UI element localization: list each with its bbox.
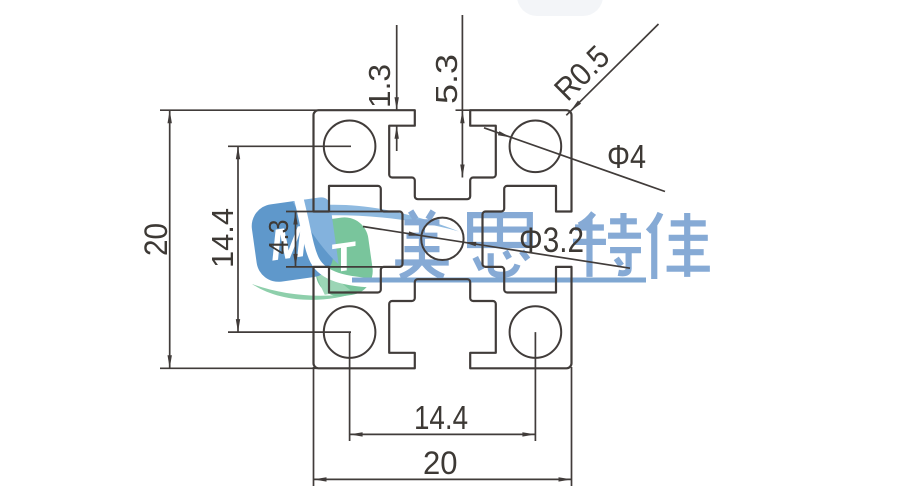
svg-text:5.3: 5.3 [429, 54, 464, 104]
svg-text:1.3: 1.3 [362, 64, 397, 108]
svg-text:20: 20 [423, 445, 458, 481]
svg-text:20: 20 [138, 223, 174, 256]
svg-text:14.4: 14.4 [414, 399, 468, 436]
svg-text:4.3: 4.3 [263, 220, 294, 255]
svg-text:T: T [332, 233, 357, 282]
svg-text:Φ4: Φ4 [607, 138, 646, 175]
svg-text:14.4: 14.4 [205, 208, 240, 268]
svg-text:Φ3.2: Φ3.2 [519, 221, 584, 260]
svg-text:R0.5: R0.5 [547, 38, 616, 107]
